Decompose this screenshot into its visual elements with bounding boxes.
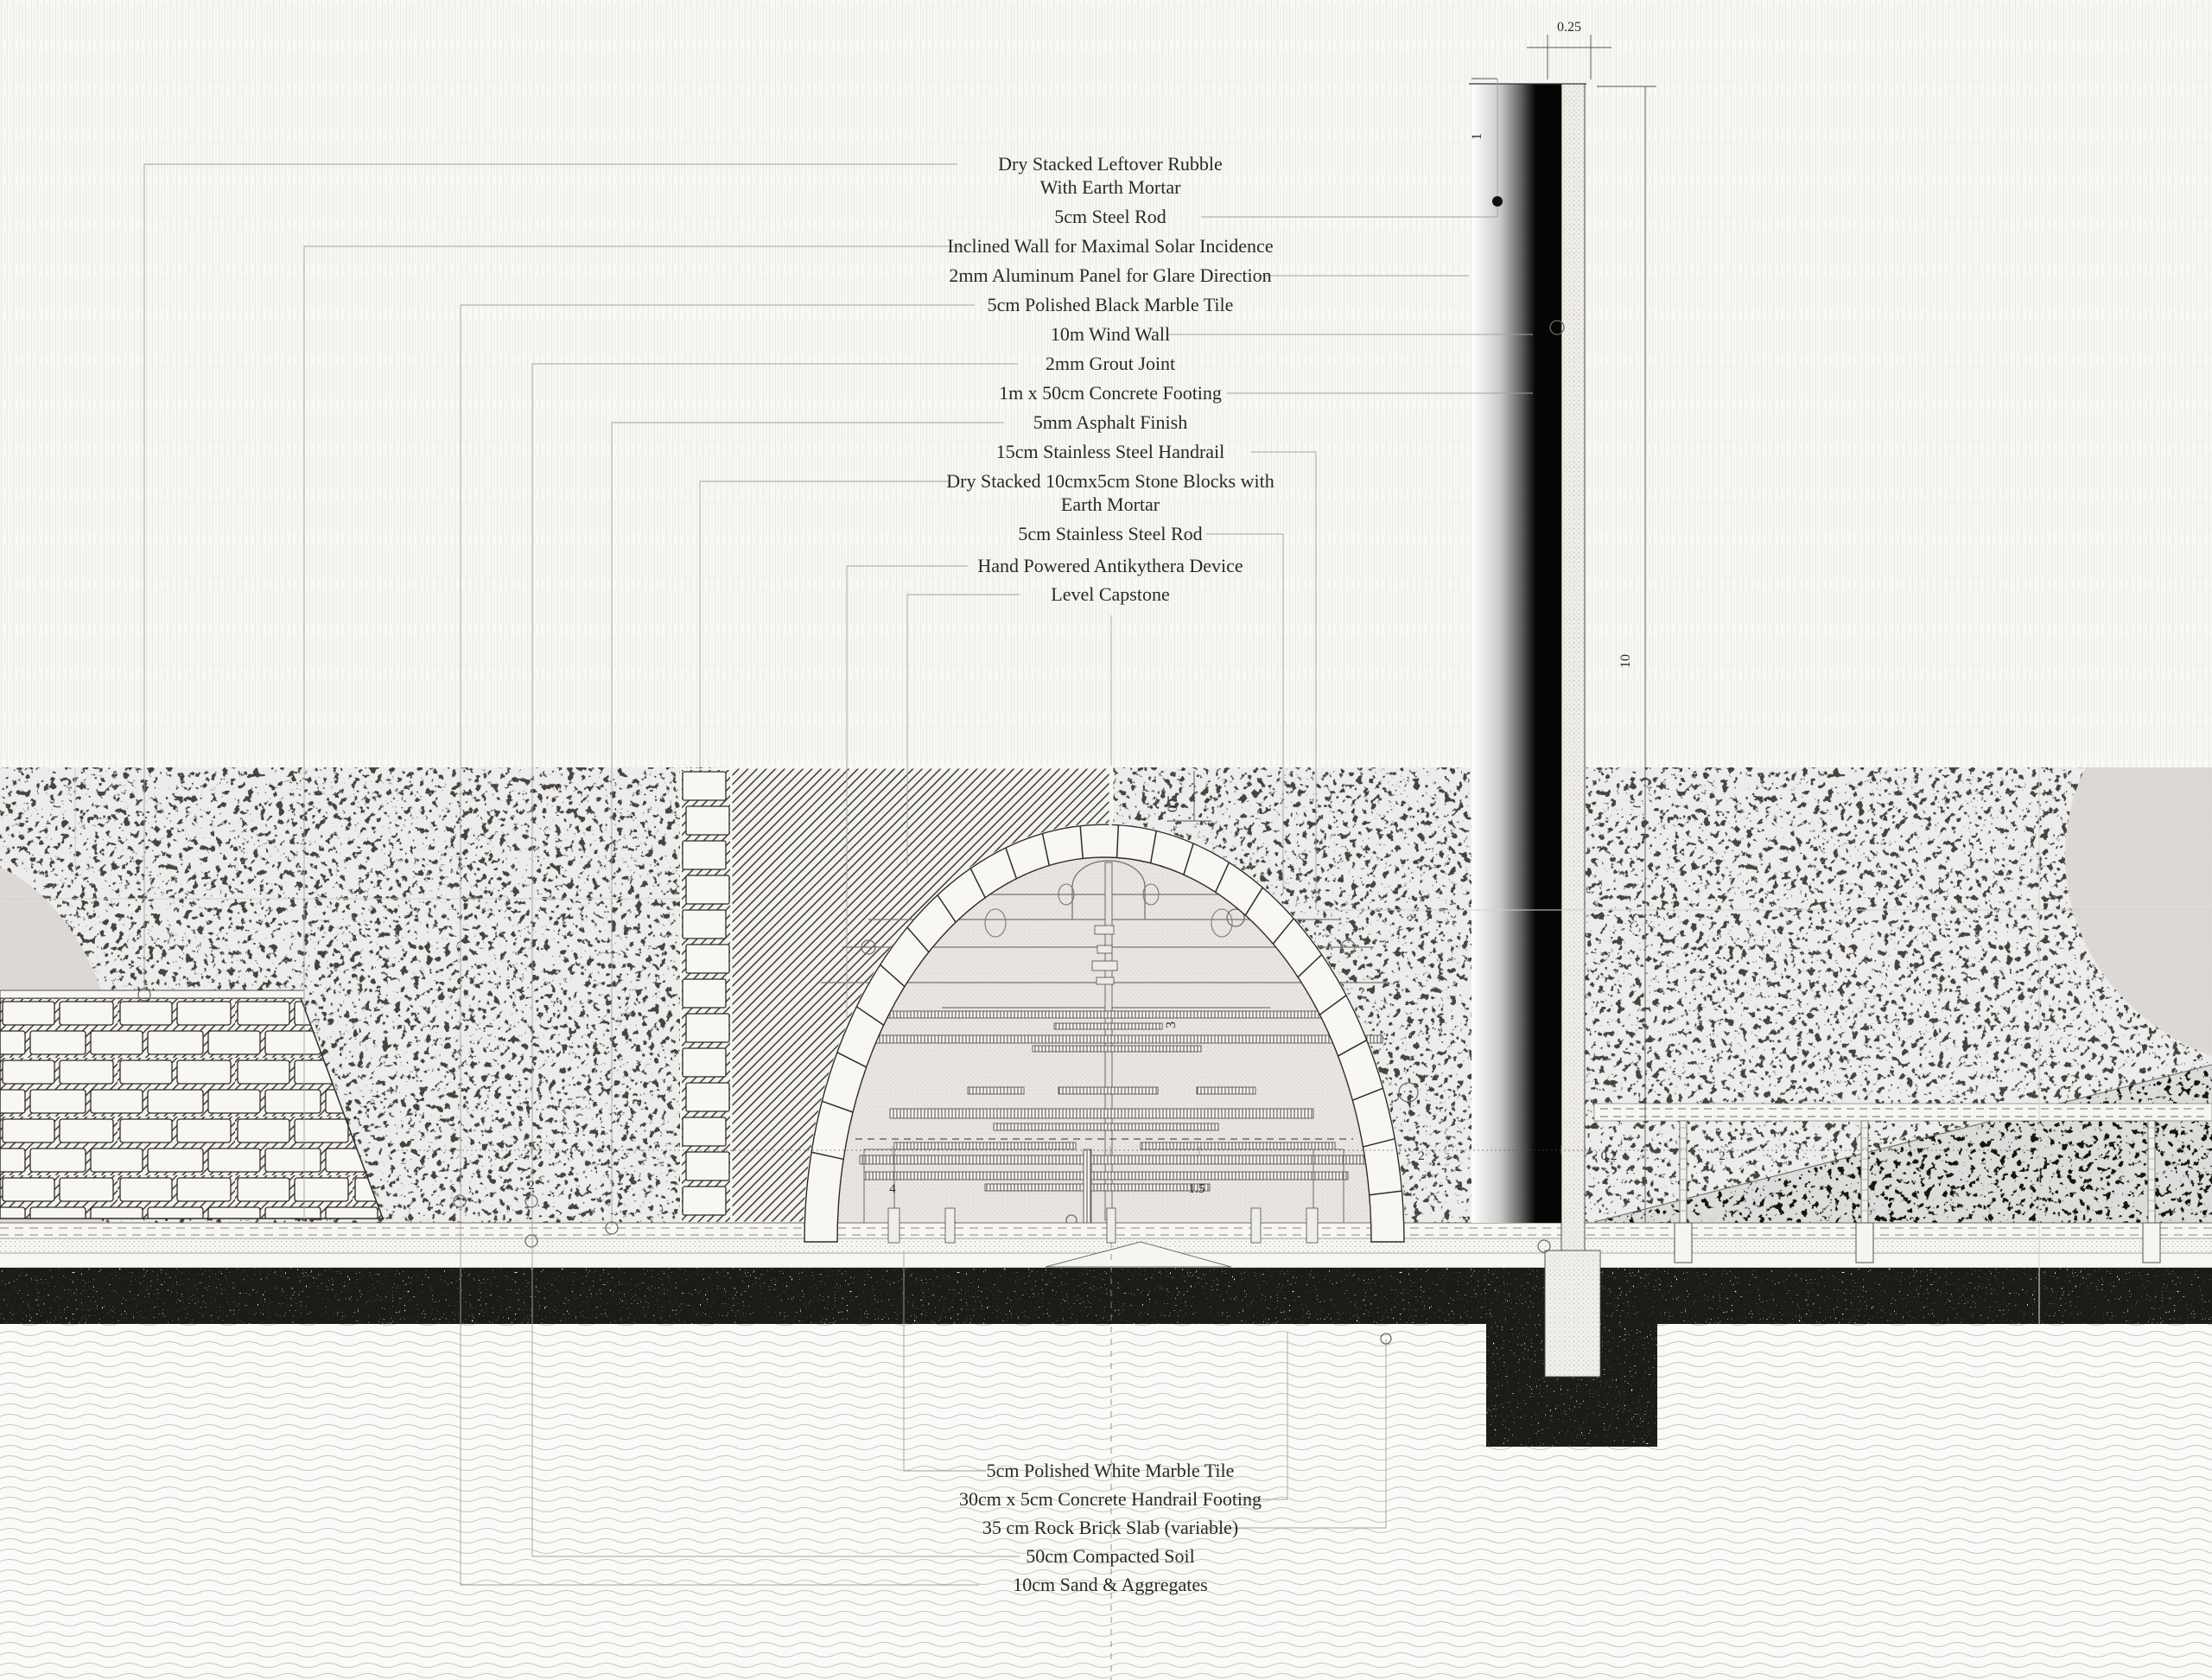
callout-label: 5cm Polished Black Marble Tile bbox=[988, 294, 1234, 315]
dimension-label: 1.5 bbox=[1189, 1182, 1205, 1196]
callout-label: 50cm Compacted Soil bbox=[1026, 1545, 1195, 1567]
dimension-label: 2 bbox=[528, 1179, 535, 1193]
callout-label: Earth Mortar bbox=[1061, 493, 1160, 515]
dimension-label: 2 bbox=[1418, 1149, 1425, 1163]
wall-capstone-line bbox=[0, 990, 304, 998]
callout-label: 2mm Aluminum Panel for Glare Direction bbox=[949, 264, 1271, 286]
dimension-label: 10 bbox=[1618, 654, 1633, 668]
callout-label: 5cm Stainless Steel Rod bbox=[1018, 523, 1202, 544]
callout-label: 5cm Polished White Marble Tile bbox=[987, 1460, 1235, 1481]
callout-label: Level Capstone bbox=[1051, 583, 1169, 605]
dimension-label: 2 bbox=[1719, 1149, 1726, 1163]
wind-wall bbox=[1469, 84, 1600, 1377]
dimension-label: 0.2 bbox=[1601, 1149, 1618, 1163]
construction-section-sheet: Dry Stacked Leftover Rubble With Earth M… bbox=[0, 0, 2212, 1680]
wall-core bbox=[1535, 84, 1561, 1223]
dimension-label: 0.25 bbox=[1557, 20, 1581, 35]
callout-label: 1m x 50cm Concrete Footing bbox=[999, 382, 1222, 404]
dimension-label: 1 bbox=[1470, 133, 1484, 140]
construction-section-drawing: Dry Stacked Leftover Rubble With Earth M… bbox=[0, 0, 2212, 1680]
callout-label: With Earth Mortar bbox=[1040, 176, 1182, 198]
stone-block-column bbox=[681, 769, 731, 1223]
callout-label: 35 cm Rock Brick Slab (variable) bbox=[982, 1517, 1238, 1538]
callout-label: Hand Powered Antikythera Device bbox=[977, 555, 1243, 576]
callout-label: 30cm x 5cm Concrete Handrail Footing bbox=[959, 1488, 1262, 1510]
callout-label: 5mm Asphalt Finish bbox=[1033, 411, 1187, 433]
callout-label: Dry Stacked Leftover Rubble bbox=[998, 153, 1223, 175]
dimension-label: 4 bbox=[889, 1182, 896, 1196]
steel-rod-marker bbox=[1492, 196, 1503, 207]
wall-aluminum-panel bbox=[1471, 84, 1535, 1223]
callout-label: Inclined Wall for Maximal Solar Incidenc… bbox=[947, 235, 1273, 257]
callout-label: Dry Stacked 10cmx5cm Stone Blocks with bbox=[946, 470, 1274, 492]
callout-label: 2mm Grout Joint bbox=[1046, 353, 1175, 374]
dimension-label: 0.5 bbox=[1166, 795, 1180, 812]
callout-label: 15cm Stainless Steel Handrail bbox=[996, 441, 1225, 462]
handrail-top-rail bbox=[1594, 1104, 2212, 1121]
callout-label: 5cm Steel Rod bbox=[1054, 206, 1166, 227]
dimension-label: 3 bbox=[1164, 1021, 1179, 1028]
callout-label: 10cm Sand & Aggregates bbox=[1013, 1574, 1207, 1595]
callout-label: 10m Wind Wall bbox=[1051, 323, 1170, 345]
